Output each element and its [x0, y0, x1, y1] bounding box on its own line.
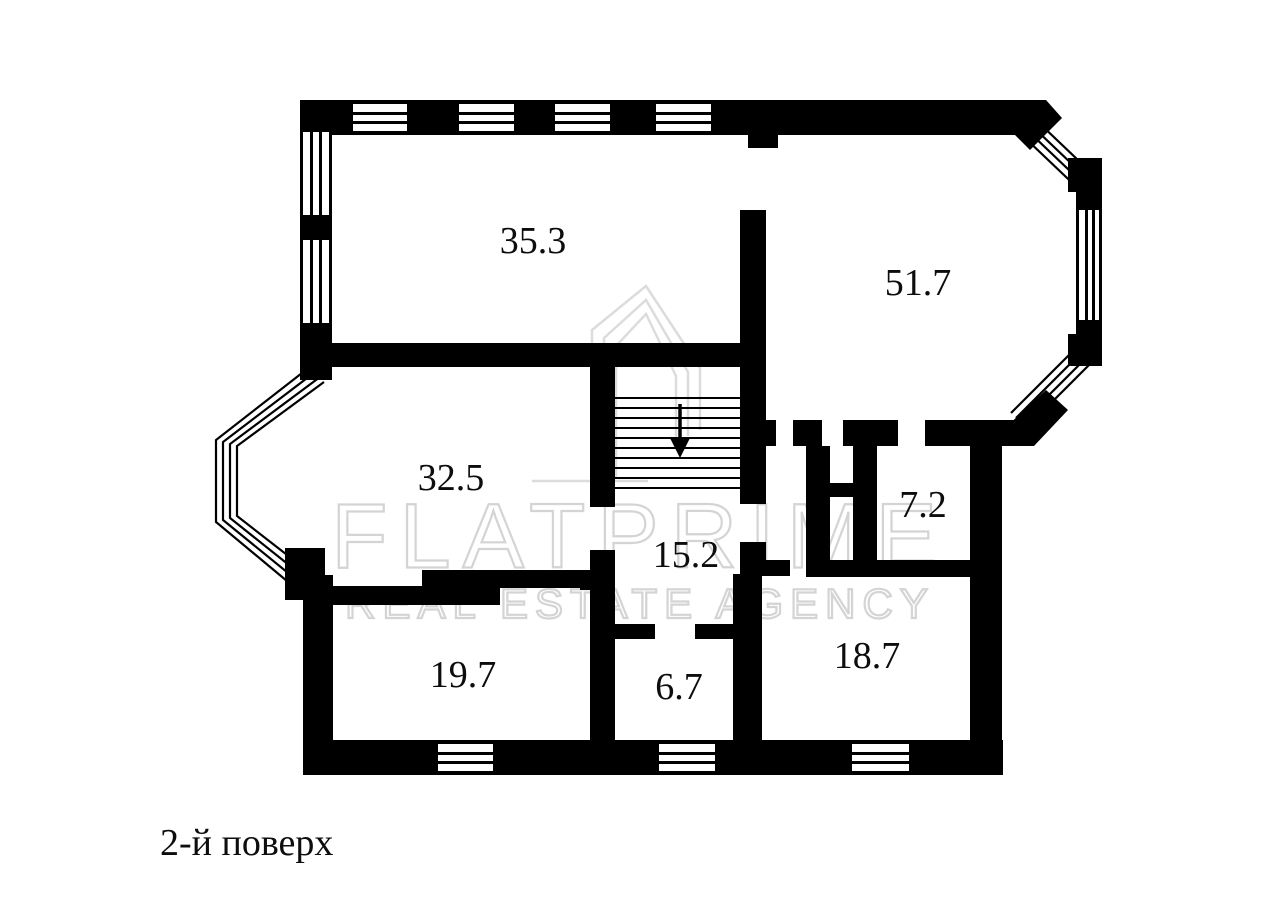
room-area-label-35-3: 35.3: [500, 219, 567, 263]
window-left-1: [303, 132, 329, 215]
window-top-2: [459, 104, 514, 131]
window-bottom-2: [659, 744, 715, 771]
floorplan-drawing: [0, 0, 1280, 905]
room-area-label-32-5: 32.5: [418, 456, 485, 500]
floorplan-page: FLATPRIME REAL ESTATE AGENCY: [0, 0, 1280, 905]
window-bottom-3: [852, 744, 909, 771]
window-bottom-1: [438, 744, 493, 771]
window-top-1: [353, 104, 407, 131]
window-left-2: [303, 240, 329, 323]
floor-caption: 2-й поверх: [160, 821, 333, 865]
room-area-label-15-2: 15.2: [653, 533, 720, 577]
window-right-bay: [1079, 210, 1099, 320]
watermark-logo-icon: [532, 286, 700, 481]
room-area-label-19-7: 19.7: [430, 653, 497, 697]
window-top-4: [656, 104, 711, 131]
room-area-label-7-2: 7.2: [899, 483, 947, 527]
room-area-label-51-7: 51.7: [885, 261, 952, 305]
room-area-label-6-7: 6.7: [655, 665, 703, 709]
room-area-label-18-7: 18.7: [834, 634, 901, 678]
window-top-3: [555, 104, 610, 131]
